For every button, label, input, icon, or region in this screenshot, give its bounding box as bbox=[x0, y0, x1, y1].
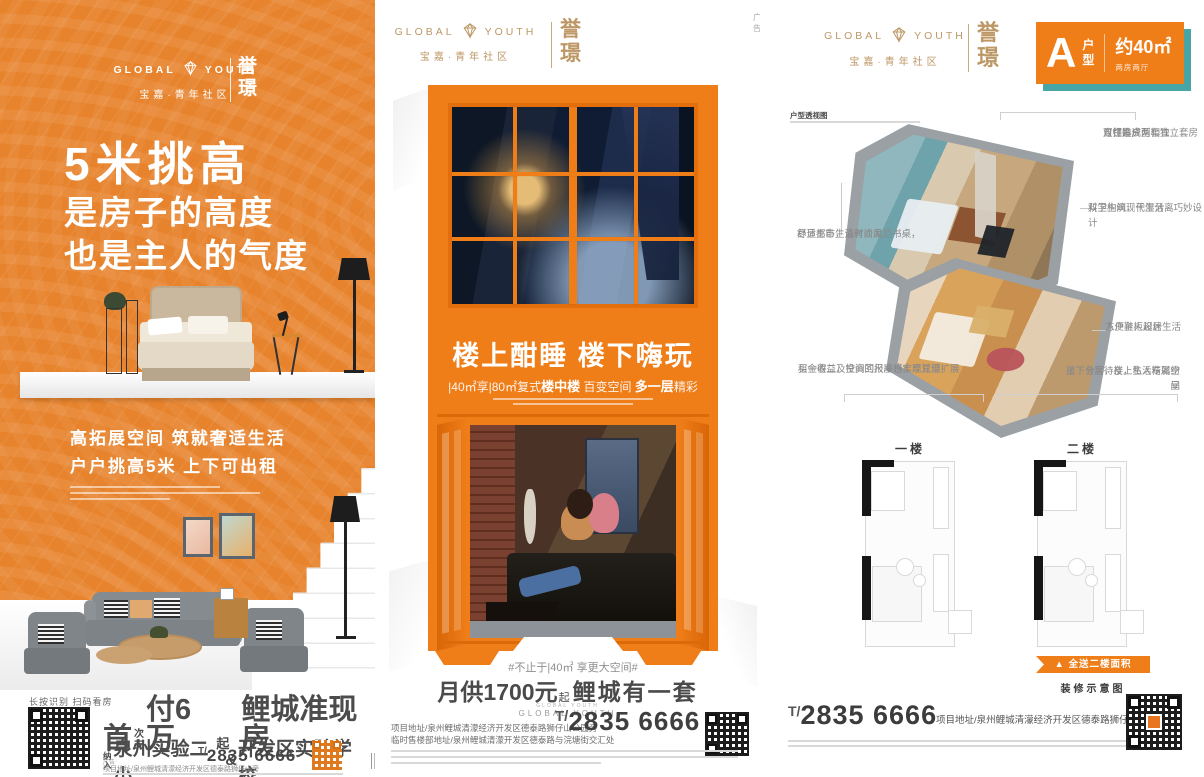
table-leg bbox=[273, 337, 281, 375]
wall-segment bbox=[1034, 556, 1043, 620]
floorplan-1 bbox=[866, 462, 954, 646]
qr-eye bbox=[333, 741, 341, 749]
sash-glass bbox=[454, 429, 461, 631]
qr-eye bbox=[737, 714, 747, 724]
qr-eye bbox=[707, 744, 717, 754]
floorplan-2 bbox=[1038, 462, 1126, 646]
cushion bbox=[130, 600, 152, 618]
open-sash-left bbox=[437, 418, 467, 651]
seal-bottom: 璟 bbox=[238, 78, 257, 100]
frame-notch bbox=[513, 637, 623, 651]
wall-segment bbox=[862, 460, 894, 467]
unit-letter: A bbox=[1046, 32, 1076, 74]
middle-panel: 广告 GLOBAL YOUTH 宝嘉·青年社区 誉 璟 bbox=[375, 0, 760, 777]
left-panel: GLOBAL YOUTH 宝嘉·青年社区 誉 璟 5米挑高 是房子的高度 也是主… bbox=[0, 0, 375, 777]
table-plant bbox=[150, 626, 168, 638]
qr-eye bbox=[707, 714, 717, 724]
plan-caption: 装修示意图 bbox=[1036, 680, 1150, 695]
qr-center-logo bbox=[1146, 714, 1162, 730]
leader-bracket bbox=[1000, 112, 1136, 120]
window-frame-bar bbox=[437, 414, 709, 417]
render-lower-floor bbox=[886, 258, 1116, 438]
mid-headline: 楼上酣睡 楼下嗨玩 bbox=[428, 334, 718, 373]
livingroom-illustration bbox=[0, 460, 375, 692]
qr-eye bbox=[313, 741, 321, 749]
unit-area: 约40㎡ bbox=[1115, 33, 1171, 59]
left-bottom-strip: 长按识别 扫码看房 首 次 支 付6万 起 鲤城准现房 纳 入 bbox=[0, 690, 375, 777]
floor1-label: 一楼 bbox=[864, 440, 956, 457]
seal-mark: 誉 璟 bbox=[238, 56, 257, 100]
chair bbox=[1085, 574, 1098, 587]
balcony bbox=[948, 610, 972, 634]
leader-line bbox=[1092, 330, 1106, 331]
brand-name: GLOBAL YOUTH bbox=[383, 22, 548, 42]
sash-glass bbox=[442, 432, 449, 634]
leader-bracket bbox=[998, 394, 1178, 402]
brand-logo: GLOBAL YOUTH 宝嘉·青年社区 bbox=[810, 26, 980, 68]
wall-segment bbox=[862, 556, 871, 620]
diamond-icon bbox=[460, 22, 480, 42]
window-mullion bbox=[513, 107, 517, 304]
photo-frame bbox=[220, 588, 234, 600]
wall-segment bbox=[1034, 460, 1043, 516]
badge-divider bbox=[1104, 34, 1105, 72]
unit-badge: A 户 型 约40㎡ 两房两厅 bbox=[1036, 22, 1184, 84]
qr-code-small bbox=[312, 740, 342, 770]
balcony bbox=[1120, 610, 1144, 634]
kitchen bbox=[1105, 554, 1121, 612]
seal-top: 誉 bbox=[238, 56, 257, 78]
person bbox=[589, 493, 619, 533]
floor-lamp-base bbox=[336, 636, 356, 639]
brand-community: 宝嘉·青年社区 bbox=[810, 53, 980, 68]
wall-segment bbox=[862, 460, 871, 516]
closet bbox=[933, 467, 949, 529]
window-night-scene bbox=[448, 103, 698, 308]
floor-lamp-pole bbox=[353, 280, 356, 372]
diamond-icon bbox=[181, 60, 200, 79]
logo-divider bbox=[551, 22, 552, 68]
qr-eye bbox=[75, 709, 88, 722]
armchair-seat bbox=[24, 648, 90, 674]
curtain bbox=[607, 107, 680, 280]
qr-eye bbox=[1167, 696, 1180, 709]
phone: T/ 2835 6666 bbox=[555, 706, 700, 737]
table bbox=[1068, 558, 1086, 576]
wall-segment bbox=[1034, 460, 1066, 467]
chair bbox=[913, 574, 926, 587]
plant-stand bbox=[106, 308, 122, 374]
headline: 5米挑高 bbox=[64, 128, 252, 194]
fineprint-line bbox=[391, 750, 738, 752]
qr-eye bbox=[1128, 696, 1141, 709]
leader-bracket bbox=[844, 394, 984, 402]
window-party-scene bbox=[470, 425, 676, 638]
window-mullion bbox=[452, 172, 694, 176]
logo-divider bbox=[968, 24, 969, 72]
cushion bbox=[256, 620, 282, 640]
bathroom bbox=[871, 471, 905, 511]
unit-rooms: 两房两厅 bbox=[1115, 62, 1149, 73]
bedroom-illustration bbox=[0, 250, 375, 400]
pillow bbox=[188, 316, 228, 334]
wood-side-table bbox=[214, 598, 248, 638]
orange-window-block: 楼上酣睡 楼下嗨玩 |40㎡享|80㎡复式楼中楼 百变空间 多一层精彩 bbox=[428, 85, 718, 651]
floor2-label: 二楼 bbox=[1036, 440, 1128, 457]
qr-eye bbox=[30, 709, 43, 722]
fineprint-line bbox=[493, 398, 653, 400]
table-leg bbox=[291, 337, 299, 375]
rug bbox=[470, 621, 676, 638]
badge-area-col: 约40㎡ 两房两厅 bbox=[1115, 33, 1171, 73]
bed-base bbox=[142, 368, 250, 381]
floor-lamp-base bbox=[344, 370, 364, 373]
seal-mark: 誉 璟 bbox=[977, 20, 999, 71]
qr-code bbox=[28, 707, 90, 769]
brand-community: 宝嘉·青年社区 bbox=[383, 48, 548, 63]
kitchen bbox=[933, 554, 949, 612]
floor-lamp-shade bbox=[330, 496, 360, 522]
bathroom bbox=[1043, 471, 1077, 511]
wall-art bbox=[219, 513, 255, 559]
fineprint-line bbox=[103, 773, 343, 775]
table bbox=[896, 558, 914, 576]
cushion bbox=[154, 598, 180, 618]
qr-code bbox=[1126, 694, 1182, 750]
qr-eye bbox=[1128, 735, 1141, 748]
feature-1: 高拓展空间 筑就奢适生活 bbox=[70, 424, 286, 449]
window-mullion bbox=[569, 107, 577, 304]
phone: T/ 2835 6666 bbox=[198, 746, 296, 766]
cushion bbox=[38, 624, 64, 644]
bed-duvet bbox=[138, 342, 254, 370]
seal-mark: 誉 璟 bbox=[560, 18, 581, 66]
plant-stand-2 bbox=[126, 300, 138, 374]
gift-ribbon: ▲ 全送二楼面积 bbox=[1036, 656, 1150, 673]
phone: T/ 2835 6666 bbox=[788, 700, 937, 731]
logo-divider bbox=[230, 58, 231, 102]
window-mullion bbox=[634, 107, 638, 304]
right-panel: GLOBAL YOUTH 宝嘉·青年社区 誉 璟 A 户 型 约40㎡ 两房两厅 bbox=[760, 0, 1204, 777]
vase bbox=[524, 489, 536, 544]
fineprint-tick bbox=[371, 753, 372, 769]
wall-art bbox=[183, 517, 213, 557]
window-mullion bbox=[452, 237, 694, 241]
pillow bbox=[147, 317, 182, 336]
fineprint-line bbox=[513, 403, 633, 405]
subhead-1: 是房子的高度 bbox=[64, 186, 274, 234]
mid-subline: |40㎡享|80㎡复式楼中楼 百变空间 多一层精彩 bbox=[428, 376, 718, 395]
open-sash-right bbox=[679, 418, 709, 651]
diamond-icon bbox=[889, 26, 909, 46]
coffee-table-2 bbox=[96, 646, 152, 664]
brand-logo: GLOBAL YOUTH 宝嘉·青年社区 bbox=[383, 22, 548, 63]
closet bbox=[1105, 467, 1121, 529]
fineprint-line bbox=[391, 756, 738, 758]
monthly-line: 月供1700元 起 鲤城有一套 bbox=[375, 673, 760, 707]
qr-eye bbox=[30, 754, 43, 767]
floor-lamp-pole bbox=[344, 520, 347, 638]
sash-glass bbox=[696, 432, 703, 634]
armchair-seat bbox=[240, 646, 308, 672]
fineprint-line bbox=[788, 740, 1138, 742]
fineprint-line bbox=[788, 745, 1138, 747]
floor-lamp-shade bbox=[338, 258, 370, 280]
brand-name: GLOBAL YOUTH bbox=[810, 26, 980, 46]
note-title: 户型透视图 bbox=[790, 110, 828, 121]
unit-type-stack: 户 型 bbox=[1082, 38, 1094, 68]
person-hair bbox=[567, 489, 593, 519]
fineprint-line bbox=[391, 762, 601, 764]
low-table bbox=[486, 602, 556, 621]
cushion bbox=[104, 600, 128, 618]
real-estate-poster: GLOBAL YOUTH 宝嘉·青年社区 誉 璟 5米挑高 是房子的高度 也是主… bbox=[0, 0, 1204, 777]
sash-glass bbox=[684, 429, 691, 631]
brand-left: GLOBAL bbox=[113, 64, 175, 76]
